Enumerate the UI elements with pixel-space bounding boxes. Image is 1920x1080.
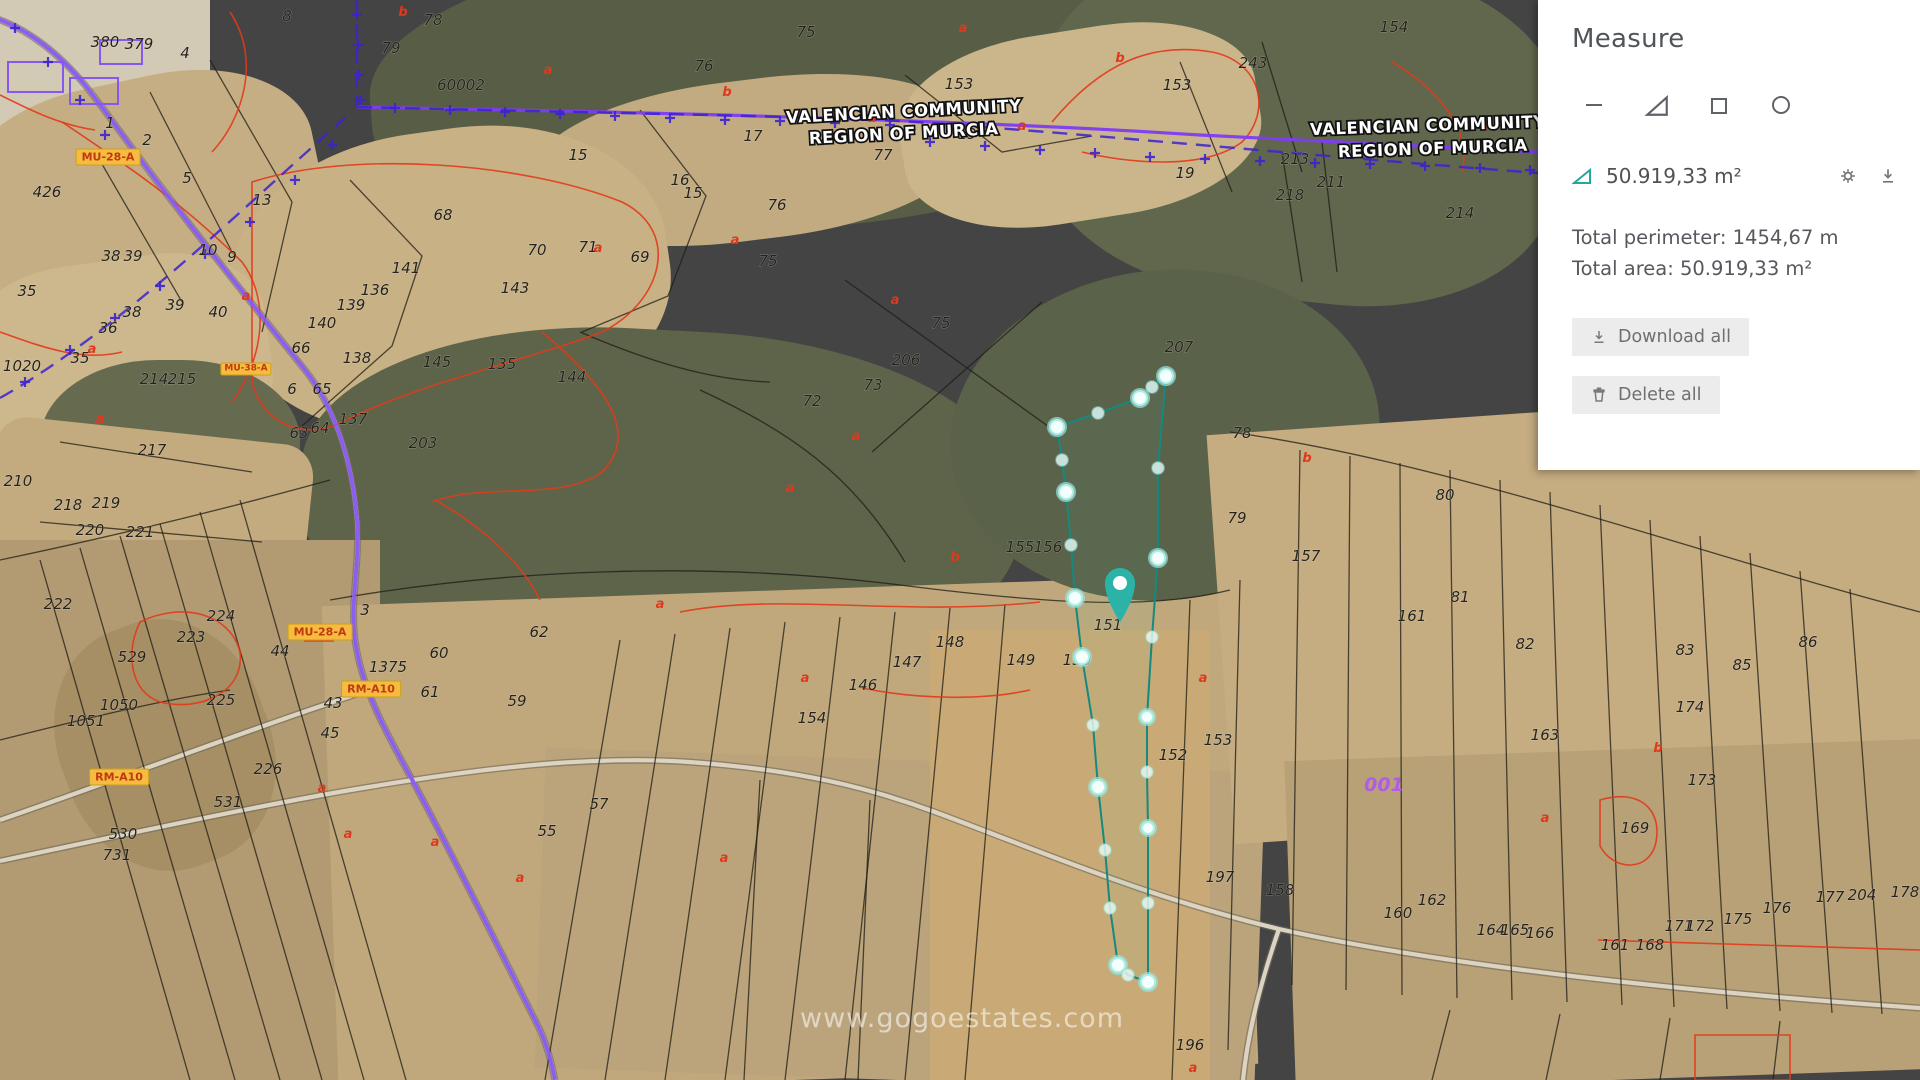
map-label: 243 xyxy=(1239,54,1268,72)
map-label: 66 xyxy=(291,339,310,357)
map-label: 149 xyxy=(1007,651,1036,669)
download-icon xyxy=(1590,328,1608,346)
measure-panel: Measure 50.919,33 m² xyxy=(1538,0,1920,470)
panel-title: Measure xyxy=(1572,24,1920,54)
parcel-boundary-line xyxy=(40,560,190,1080)
measurement-vertex-handle[interactable] xyxy=(1152,462,1164,474)
total-perimeter: Total perimeter: 1454,67 m xyxy=(1572,222,1920,253)
map-label: a xyxy=(720,851,729,866)
map-label: 207 xyxy=(1165,338,1194,356)
map-label: b xyxy=(1115,51,1124,66)
map-label: a xyxy=(544,63,553,78)
circle-icon xyxy=(1769,93,1793,117)
map-label: 3 xyxy=(360,601,370,619)
map-label: 138 xyxy=(343,349,372,367)
rectangle-tool-button[interactable] xyxy=(1706,92,1732,118)
map-label: 1020 xyxy=(3,357,41,375)
map-label: a xyxy=(801,671,810,686)
map-label: 196 xyxy=(1176,1036,1205,1054)
map-label: 55 xyxy=(537,822,556,840)
map-label: 72 xyxy=(802,392,821,410)
map-label: 154 xyxy=(798,709,827,727)
measurement-vertex-handle[interactable] xyxy=(1092,407,1104,419)
map-label: 60002 xyxy=(437,76,485,94)
parcel-boundary-line xyxy=(210,60,292,332)
measurement-vertex-handle[interactable] xyxy=(1099,844,1111,856)
map-label: 379 xyxy=(125,35,154,53)
measurement-vertex-handle[interactable] xyxy=(1141,821,1155,835)
parcel-boundary-line xyxy=(845,280,1056,432)
map-label: 223 xyxy=(177,628,206,646)
map-label: a xyxy=(786,481,795,496)
map-label: 380 xyxy=(91,33,120,51)
parcel-boundary-line xyxy=(1600,505,1622,1005)
square-icon xyxy=(1707,93,1731,117)
delete-all-button[interactable]: Delete all xyxy=(1572,376,1720,414)
map-label: 214 xyxy=(140,370,169,388)
map-label: 217 xyxy=(138,441,167,459)
map-label: 1 xyxy=(105,114,115,132)
map-label: 157 xyxy=(1292,547,1321,565)
line-tool-button[interactable] xyxy=(1582,92,1608,118)
parcel-boundary-line xyxy=(1228,580,1240,1050)
map-label: a xyxy=(344,827,353,842)
map-label: 38 xyxy=(122,303,141,321)
map-label: 161 xyxy=(1601,936,1630,954)
map-label: 145 xyxy=(423,353,452,371)
map-label: a xyxy=(1541,811,1550,826)
map-label: 60 xyxy=(429,644,448,662)
map-label: a xyxy=(318,781,327,796)
parcel-boundary-line xyxy=(582,110,706,332)
map-label: 63 xyxy=(289,424,308,442)
map-label: 143 xyxy=(501,279,530,297)
parcel-boundary-line xyxy=(545,640,620,1080)
map-label: 221 xyxy=(126,523,155,541)
map-label: 530 xyxy=(109,825,138,843)
map-label: 135 xyxy=(488,355,517,373)
map-label: 146 xyxy=(849,676,878,694)
measurement-vertex-handle[interactable] xyxy=(1058,484,1074,500)
triangle-icon xyxy=(1644,92,1670,118)
cadastral-red-boundary xyxy=(435,500,540,600)
map-label: 197 xyxy=(1206,868,1235,886)
parcel-boundary-line xyxy=(0,480,330,560)
parcel-boundary-line xyxy=(872,302,1042,452)
parcel-boundary-line xyxy=(1432,1010,1450,1080)
map-label: 2 xyxy=(142,131,152,149)
map-label: 177 xyxy=(1816,888,1845,906)
map-label: 75 xyxy=(796,23,815,41)
map-label: 1051 xyxy=(67,712,105,730)
map-label: 64 xyxy=(310,419,329,437)
map-label: a xyxy=(1189,1061,1198,1076)
map-label: 226 xyxy=(254,760,283,778)
map-label: 426 xyxy=(33,183,62,201)
measurement-vertex-handle[interactable] xyxy=(1158,368,1174,384)
measurement-value: 50.919,33 m² xyxy=(1606,164,1742,188)
map-label: 218 xyxy=(54,496,83,514)
measurement-vertex-handle[interactable] xyxy=(1067,590,1083,606)
map-label: 45 xyxy=(320,724,339,742)
map-label: 176 xyxy=(1763,899,1792,917)
map-label: 224 xyxy=(207,607,236,625)
map-label: 178 xyxy=(1891,883,1920,901)
measurement-vertex-handle[interactable] xyxy=(1140,974,1156,990)
map-label: 172 xyxy=(1686,917,1715,935)
region-boundary-line xyxy=(8,62,63,92)
map-label: 141 xyxy=(392,259,421,277)
map-label: 1050 xyxy=(100,696,138,714)
measurement-download-button[interactable] xyxy=(1876,164,1900,188)
parcel-boundary-line xyxy=(1450,470,1457,998)
map-label: 175 xyxy=(1724,910,1753,928)
parcel-boundary-line xyxy=(580,332,770,382)
map-label: 82 xyxy=(1515,635,1534,653)
map-label: a xyxy=(594,241,603,256)
total-area: Total area: 50.919,33 m² xyxy=(1572,253,1920,284)
parcel-boundary-line xyxy=(1292,450,1300,985)
map-label: 140 xyxy=(308,314,337,332)
download-icon xyxy=(1878,166,1898,186)
map-label: a xyxy=(656,597,665,612)
map-label: 156 xyxy=(1034,538,1063,556)
measurement-vertex-handle[interactable] xyxy=(1074,649,1090,665)
map-label: 8 xyxy=(282,7,292,25)
measurement-vertex-handle[interactable] xyxy=(1090,779,1106,795)
parcel-boundary-line xyxy=(744,780,760,1080)
map-label: 44 xyxy=(270,642,289,660)
parcel-boundary-line xyxy=(1750,553,1780,1011)
parcel-boundary-line xyxy=(700,390,905,562)
map-label: 81 xyxy=(1450,588,1469,606)
map-label: 76 xyxy=(694,57,713,75)
map-viewer: 3803794878796000212426513109383935393836… xyxy=(0,0,1920,1080)
map-label: 160 xyxy=(1384,904,1413,922)
measurement-vertex-handle[interactable] xyxy=(1141,766,1153,778)
gear-icon xyxy=(1838,166,1858,186)
map-label: 219 xyxy=(92,494,121,512)
cadastral-red-boundary xyxy=(212,12,246,152)
map-label: 211 xyxy=(1317,173,1346,191)
map-label: b xyxy=(950,550,959,565)
map-label: a xyxy=(431,835,440,850)
map-label: 70 xyxy=(527,241,546,259)
map-label: a xyxy=(891,293,900,308)
cadastral-red-boundary xyxy=(305,625,333,641)
map-label: 80 xyxy=(1435,486,1454,504)
map-label: a xyxy=(242,289,251,304)
map-label: a xyxy=(852,429,861,444)
map-label: 83 xyxy=(1675,641,1694,659)
measurement-vertex-handle[interactable] xyxy=(1065,539,1077,551)
map-label: 139 xyxy=(337,296,366,314)
map-label: 13 xyxy=(252,191,271,209)
parcel-boundary-line xyxy=(1346,456,1350,990)
map-label: 169 xyxy=(1621,819,1650,837)
measurement-vertex-handle[interactable] xyxy=(1056,454,1068,466)
map-label: 220 xyxy=(76,521,105,539)
cadastral-red-boundary xyxy=(680,602,1040,612)
map-label: 69 xyxy=(630,248,649,266)
map-label: 19 xyxy=(1175,164,1194,182)
map-label: 152 xyxy=(1159,746,1188,764)
parcel-boundary-line xyxy=(1773,1021,1780,1080)
map-label: 57 xyxy=(589,795,609,813)
map-label: 163 xyxy=(1531,726,1560,744)
map-label: b xyxy=(722,85,731,100)
map-label: 001 xyxy=(1364,774,1404,796)
map-label: 174 xyxy=(1676,698,1705,716)
totals-block: Total perimeter: 1454,67 m Total area: 5… xyxy=(1572,222,1920,284)
trash-icon xyxy=(1590,386,1608,404)
map-label: a xyxy=(96,412,105,427)
parcel-boundary-line xyxy=(1172,600,1190,1080)
map-label: 166 xyxy=(1526,924,1555,942)
map-label: 158 xyxy=(1266,881,1295,899)
map-label: 59 xyxy=(507,692,526,710)
map-label: 531 xyxy=(214,793,243,811)
map-label: a xyxy=(1199,671,1208,686)
map-label: a xyxy=(1018,119,1027,134)
map-label: 168 xyxy=(1636,936,1665,954)
map-label: 218 xyxy=(1276,186,1305,204)
measurement-vertex-handle[interactable] xyxy=(1140,710,1154,724)
parcel-boundary-line xyxy=(1282,152,1302,282)
map-label: 65 xyxy=(312,380,331,398)
map-label: 78 xyxy=(423,11,442,29)
map-label: 79 xyxy=(381,39,400,57)
map-label: 206 xyxy=(892,351,921,369)
map-label: a xyxy=(731,233,740,248)
map-label: 5 xyxy=(182,169,192,187)
map-label: 213 xyxy=(1281,150,1310,168)
map-label: a xyxy=(959,21,968,36)
map-label: 204 xyxy=(1848,886,1877,904)
map-label: 4 xyxy=(180,44,190,62)
map-label: 39 xyxy=(165,296,184,314)
cadastral-red-boundary xyxy=(1052,50,1259,162)
map-label: 75 xyxy=(931,314,950,332)
watermark: www.gogoestates.com xyxy=(800,1003,1124,1034)
measurement-vertex-handle[interactable] xyxy=(1150,550,1166,566)
measurement-vertex-handle[interactable] xyxy=(1146,631,1158,643)
map-label: a xyxy=(88,342,97,357)
map-label: 68 xyxy=(433,206,452,224)
map-label: 43 xyxy=(323,694,342,712)
map-label: 144 xyxy=(558,368,587,386)
map-label: 16 xyxy=(670,171,689,189)
area-triangle-icon xyxy=(1572,167,1592,185)
parcel-boundary-line xyxy=(1546,1014,1560,1080)
map-label: 161 xyxy=(1398,607,1427,625)
map-label: b xyxy=(1653,741,1662,756)
map-label: 225 xyxy=(207,691,236,709)
parcel-boundary-line xyxy=(1850,589,1882,1014)
download-all-label: Download all xyxy=(1618,327,1731,347)
map-label: 148 xyxy=(936,633,965,651)
download-all-button[interactable]: Download all xyxy=(1572,318,1749,356)
measurement-vertex-handle[interactable] xyxy=(1146,381,1158,393)
map-label: 79 xyxy=(1227,509,1246,527)
measurement-settings-button[interactable] xyxy=(1836,164,1860,188)
circle-tool-button[interactable] xyxy=(1768,92,1794,118)
map-label: 214 xyxy=(1446,204,1475,222)
measurement-vertex-handle[interactable] xyxy=(1087,719,1099,731)
map-label: 86 xyxy=(1798,633,1817,651)
map-label: 78 xyxy=(1232,424,1251,442)
map-label: 173 xyxy=(1688,771,1717,789)
delete-all-label: Delete all xyxy=(1618,385,1702,405)
map-label: 77 xyxy=(873,146,893,164)
measurement-vertex-handle[interactable] xyxy=(1142,897,1154,909)
measurement-vertex-handle[interactable] xyxy=(1104,902,1116,914)
map-label: 40 xyxy=(208,303,227,321)
map-label: 75 xyxy=(758,252,777,270)
map-label: 39 xyxy=(123,247,142,265)
region-boundary-line xyxy=(352,10,365,105)
parcel-boundary-line xyxy=(1660,1018,1670,1080)
map-label: 731 xyxy=(103,846,132,864)
minus-icon xyxy=(1583,93,1607,117)
parcel-boundary-line xyxy=(725,622,785,1080)
map-label: 162 xyxy=(1418,891,1447,909)
map-label: 6 xyxy=(287,380,297,398)
map-label: 36 xyxy=(98,319,117,337)
map-label: 153 xyxy=(1204,731,1233,749)
measurement-vertex-handle[interactable] xyxy=(1122,969,1134,981)
map-label: a xyxy=(516,871,525,886)
map-label: 76 xyxy=(767,196,786,214)
map-label: 62 xyxy=(529,623,548,641)
map-label: 10 xyxy=(198,241,217,259)
map-label: 17 xyxy=(743,127,763,145)
measurement-vertex-handle[interactable] xyxy=(1049,419,1065,435)
map-label: 222 xyxy=(44,595,73,613)
map-label: 73 xyxy=(863,376,882,394)
map-label: 35 xyxy=(17,282,36,300)
measurement-result-row: 50.919,33 m² xyxy=(1572,164,1900,188)
map-label: 9 xyxy=(227,248,237,266)
map-label: 210 xyxy=(4,472,33,490)
map-label: 147 xyxy=(893,653,922,671)
map-label: REGION OF MURCIA xyxy=(1338,136,1528,162)
map-label: 38 xyxy=(101,247,120,265)
map-label: 153 xyxy=(945,75,974,93)
area-tool-button[interactable] xyxy=(1644,92,1670,118)
map-label: 1375 xyxy=(369,658,407,676)
map-label: 85 xyxy=(1732,656,1751,674)
map-label: 203 xyxy=(409,434,438,452)
map-label: b xyxy=(1302,451,1311,466)
measurement-vertex-handle[interactable] xyxy=(1132,390,1148,406)
parcel-boundary-line xyxy=(1322,142,1337,272)
map-label: 154 xyxy=(1380,18,1409,36)
parcel-boundary-line xyxy=(605,634,675,1080)
map-label: b xyxy=(398,5,407,20)
map-label: 153 xyxy=(1163,76,1192,94)
measure-tools xyxy=(1582,92,1920,118)
map-label: 61 xyxy=(420,683,439,701)
map-label: 137 xyxy=(339,410,368,428)
pin-hole-icon xyxy=(1113,576,1127,590)
map-label: 15 xyxy=(568,146,587,164)
map-label: 155 xyxy=(1006,538,1035,556)
map-label: VALENCIAN COMMUNITY xyxy=(1310,112,1547,139)
map-label: 215 xyxy=(168,370,197,388)
map-label: 529 xyxy=(118,648,147,666)
